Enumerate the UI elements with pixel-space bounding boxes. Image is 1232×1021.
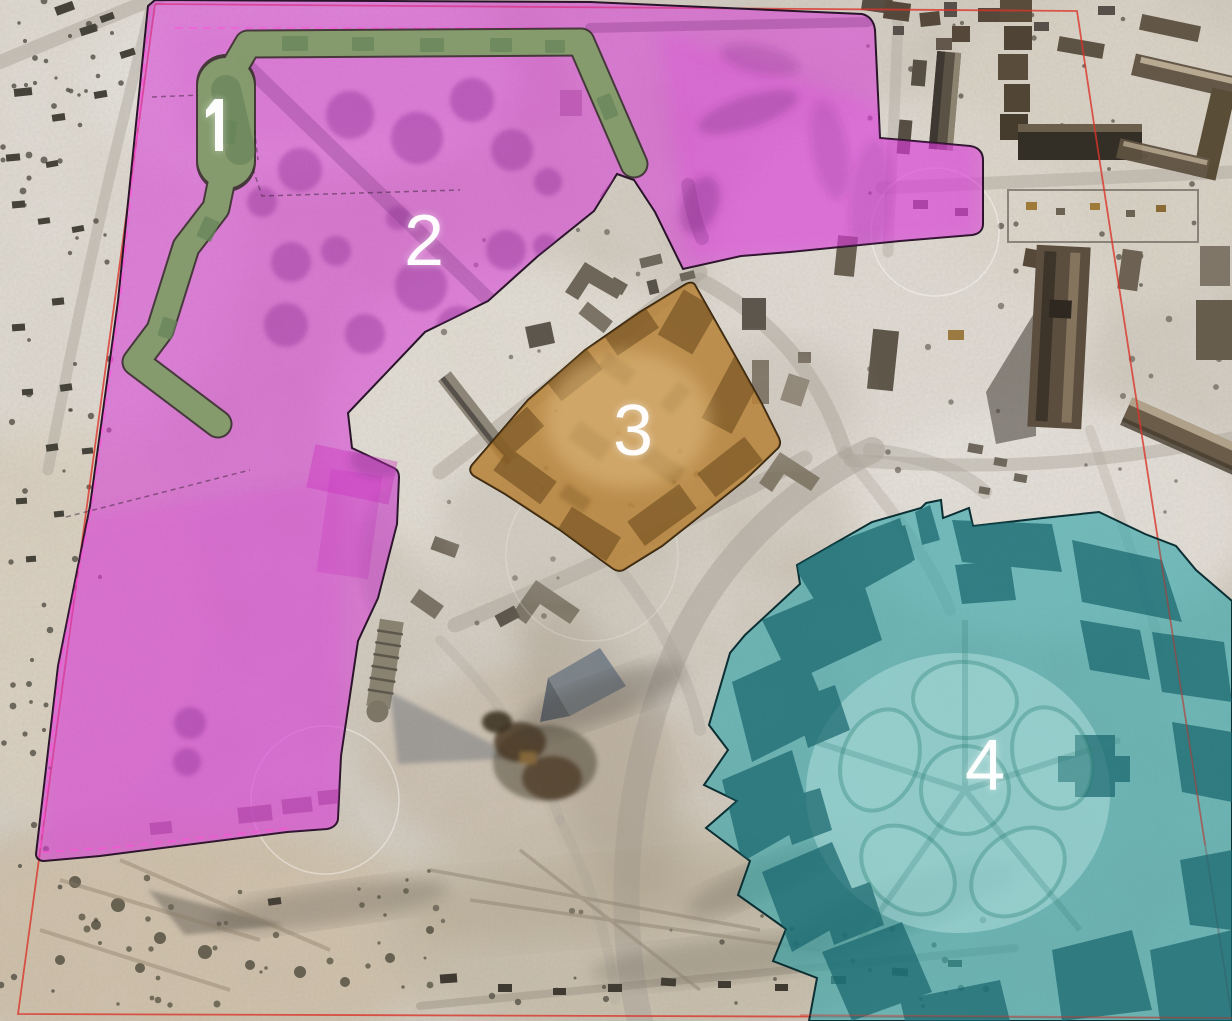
svg-text:2: 2 bbox=[404, 201, 444, 281]
svg-text:4: 4 bbox=[965, 726, 1005, 806]
svg-text:3: 3 bbox=[613, 391, 653, 471]
